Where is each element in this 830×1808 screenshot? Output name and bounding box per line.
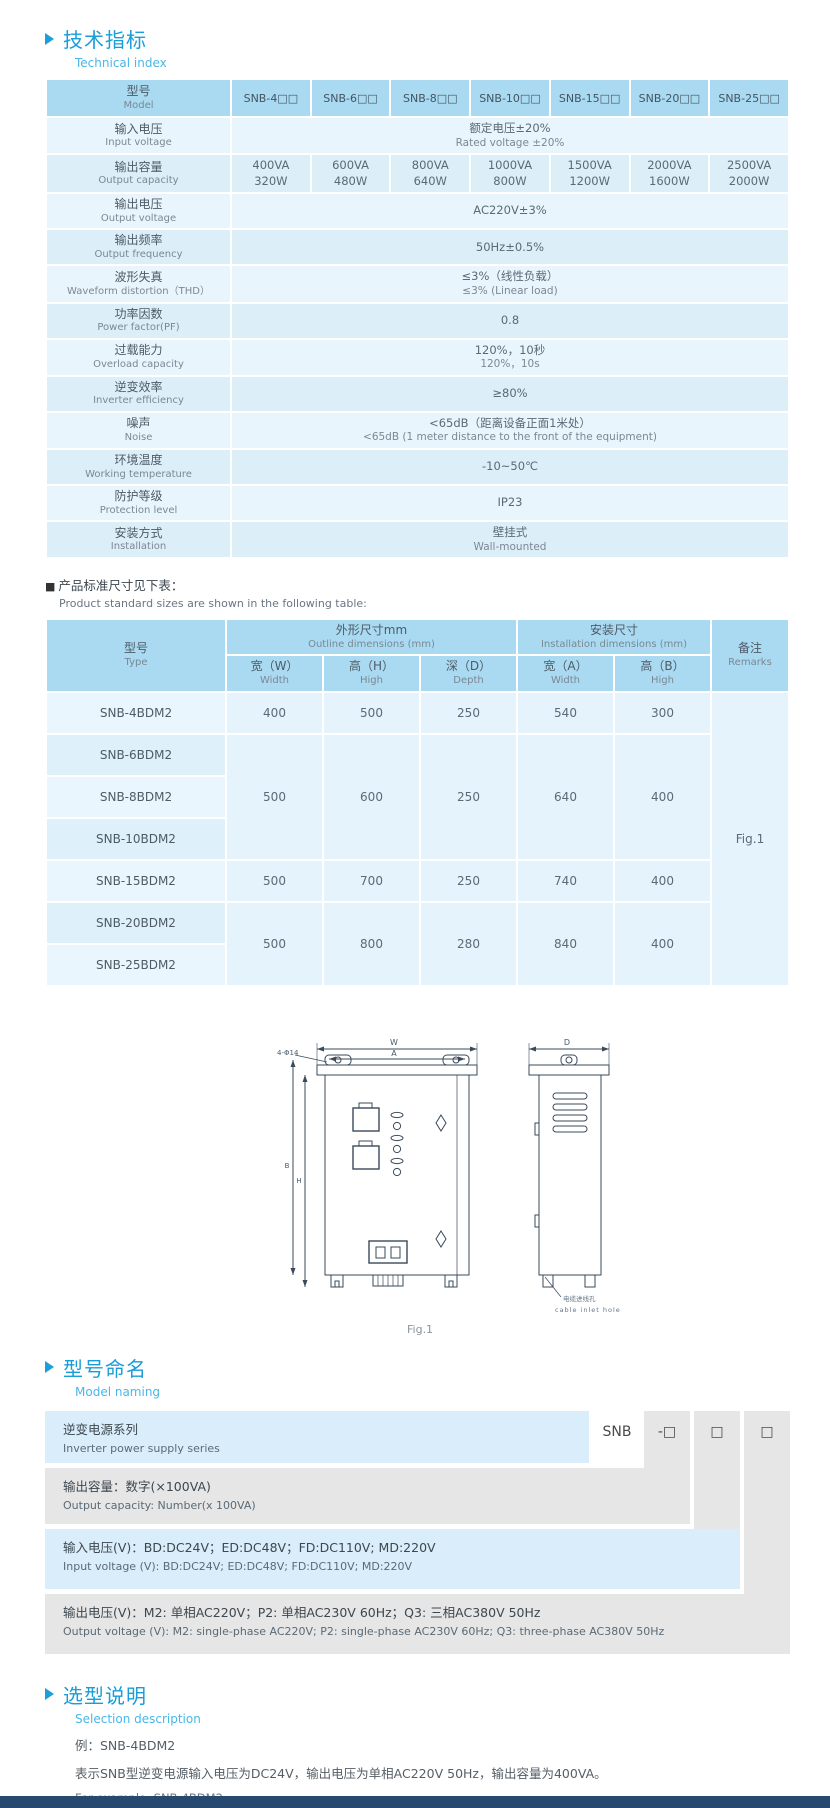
row-value: IP23	[231, 485, 789, 521]
dim-cell: 300	[614, 692, 711, 734]
size-header-install: 安装尺寸Installation dimensions (mm)	[517, 619, 711, 655]
spec-row-output-capacity: 输出容量 Output capacity 400VA320W 600VA480W…	[46, 154, 789, 193]
spec-row: 输出电压Output voltage AC220V±3%	[46, 193, 789, 229]
row-value: <65dB（距离设备正面1米处）<65dB (1 meter distance …	[231, 412, 789, 449]
section-title-en: Model naming	[75, 1385, 790, 1399]
naming-row-output: 输出电压(V)：M2: 单相AC220V；P2: 单相AC230V 60Hz；Q…	[45, 1594, 790, 1654]
model-cell: SNB-20BDM2	[46, 902, 226, 944]
row-label: 逆变效率Inverter efficiency	[46, 376, 231, 412]
model-col: SNB-10□□	[470, 79, 550, 117]
figure-caption: Fig.1	[407, 1323, 433, 1336]
model-col: SNB-25□□	[709, 79, 789, 117]
size-note-zh: 产品标准尺寸见下表：	[58, 578, 183, 593]
size-table: 型号Type 外形尺寸mmOutline dimensions (mm) 安装尺…	[45, 618, 790, 986]
dim-cell: 500	[226, 860, 323, 902]
model-cell: SNB-25BDM2	[46, 944, 226, 986]
size-header-type: 型号Type	[46, 619, 226, 691]
dim-d-label: D	[564, 1038, 570, 1047]
size-header-outline: 外形尺寸mmOutline dimensions (mm)	[226, 619, 517, 655]
dim-w-label: W	[390, 1038, 398, 1047]
dim-cell: 250	[420, 734, 517, 860]
model-col: SNB-6□□	[311, 79, 391, 117]
row-value: -10~50℃	[231, 449, 789, 485]
dim-b-label: B	[285, 1162, 290, 1170]
row-value: ≤3%（线性负载）≤3% (Linear load)	[231, 265, 789, 302]
size-subheader: 高（H）High	[323, 655, 420, 691]
row-value: ≥80%	[231, 376, 789, 412]
row-label: 输出容量 Output capacity	[46, 154, 231, 193]
model-col: SNB-8□□	[390, 79, 470, 117]
dim-cell: 700	[323, 860, 420, 902]
section-title-zh: 型号命名	[63, 1353, 147, 1382]
spec-row-input-voltage: 输入电压 Input voltage 额定电压±20% Rated voltag…	[46, 117, 789, 154]
code-prefix: SNB	[593, 1424, 641, 1440]
dim-cell: 400	[614, 734, 711, 860]
model-col: SNB-15□□	[550, 79, 630, 117]
cabinet-drawing-svg: W A D 4-Φ14 H B 电缆进线孔 cable inlet hole F…	[257, 1013, 657, 1343]
size-subheader: 宽（A）Width	[517, 655, 614, 691]
dim-cell: 500	[226, 902, 323, 986]
row-label: 防护等级Protection level	[46, 485, 231, 521]
size-note: ■产品标准尺寸见下表： Product standard sizes are s…	[45, 575, 790, 610]
naming-row-capacity: 输出容量：数字(×100VA)Output capacity: Number(x…	[45, 1468, 690, 1524]
size-row: SNB-20BDM2 500 800 280 840 400	[46, 902, 789, 944]
section-naming-header: 型号命名 Model naming	[45, 1353, 790, 1399]
spec-row: 环境温度Working temperature -10~50℃	[46, 449, 789, 485]
page-footer-bar	[0, 1796, 830, 1808]
section-arrow-icon	[45, 1688, 54, 1700]
spec-row: 波形失真Waveform distortion（THD） ≤3%（线性负载）≤3…	[46, 265, 789, 302]
model-cell: SNB-10BDM2	[46, 818, 226, 860]
code-slot-3: □	[744, 1411, 790, 1594]
size-note-en: Product standard sizes are shown in the …	[59, 597, 790, 610]
section-arrow-icon	[45, 33, 54, 45]
model-naming-ladder: -□ □ □ SNB 逆变电源系列Inverter power supply s…	[45, 1411, 790, 1654]
model-cell: SNB-6BDM2	[46, 734, 226, 776]
cable-inlet-label-zh: 电缆进线孔	[563, 1294, 596, 1303]
dim-a-label: A	[391, 1049, 397, 1058]
size-subheader: 宽（W）Width	[226, 655, 323, 691]
dim-cell: 400	[614, 860, 711, 902]
size-header-remarks: 备注Remarks	[711, 619, 789, 691]
section-arrow-icon	[45, 1361, 54, 1373]
dim-cell: 640	[517, 734, 614, 860]
dim-cell: 600	[323, 734, 420, 860]
row-value: 120%，10秒120%，10s	[231, 339, 789, 376]
section-selection-header: 选型说明 Selection description	[45, 1680, 790, 1726]
naming-row-input: 输入电压(V)：BD:DC24V；ED:DC48V；FD:DC110V; MD:…	[45, 1529, 740, 1589]
row-value: AC220V±3%	[231, 193, 789, 229]
capacity-cell: 600VA480W	[311, 154, 391, 193]
dim-cell: 740	[517, 860, 614, 902]
spec-header-row: 型号 Model SNB-4□□ SNB-6□□ SNB-8□□ SNB-10□…	[46, 79, 789, 117]
dim-cell: 250	[420, 692, 517, 734]
row-label: 噪声Noise	[46, 412, 231, 449]
naming-row-series: 逆变电源系列Inverter power supply series	[45, 1411, 589, 1463]
model-cell: SNB-4BDM2	[46, 692, 226, 734]
size-row: SNB-4BDM2 400 500 250 540 300 Fig.1	[46, 692, 789, 734]
mounting-holes-label: 4-Φ14	[277, 1049, 299, 1057]
capacity-cell: 1000VA800W	[470, 154, 550, 193]
capacity-cell: 800VA640W	[390, 154, 470, 193]
model-col: SNB-20□□	[630, 79, 710, 117]
cable-inlet-label-en: cable inlet hole	[555, 1306, 621, 1314]
code-slot-1: -□	[644, 1411, 690, 1468]
capacity-cell: 2500VA2000W	[709, 154, 789, 193]
row-value: 壁挂式Wall-mounted	[231, 521, 789, 558]
size-subheader: 高（B）High	[614, 655, 711, 691]
dim-cell: 500	[226, 734, 323, 860]
dim-cell: 400	[226, 692, 323, 734]
square-bullet-icon: ■	[45, 580, 55, 593]
model-label-zh: 型号	[49, 84, 228, 100]
dim-cell: 500	[323, 692, 420, 734]
size-subheader: 深（D）Depth	[420, 655, 517, 691]
dim-cell: 840	[517, 902, 614, 986]
section-title-zh: 技术指标	[63, 24, 147, 53]
selection-example-zh: 例：SNB-4BDM2	[75, 1735, 790, 1754]
spec-row: 噪声Noise <65dB（距离设备正面1米处）<65dB (1 meter d…	[46, 412, 789, 449]
spec-row: 防护等级Protection level IP23	[46, 485, 789, 521]
model-cell: SNB-8BDM2	[46, 776, 226, 818]
outline-drawing: W A D 4-Φ14 H B 电缆进线孔 cable inlet hole F…	[257, 1013, 790, 1343]
code-slot-2: □	[694, 1411, 740, 1529]
row-label: 安装方式Installation	[46, 521, 231, 558]
remark-cell: Fig.1	[711, 692, 789, 986]
spec-row: 安装方式Installation 壁挂式Wall-mounted	[46, 521, 789, 558]
row-label: 过载能力Overload capacity	[46, 339, 231, 376]
model-cell: SNB-15BDM2	[46, 860, 226, 902]
row-label: 功率因数Power factor(PF)	[46, 303, 231, 339]
spec-table: 型号 Model SNB-4□□ SNB-6□□ SNB-8□□ SNB-10□…	[45, 78, 790, 559]
capacity-cell: 1500VA1200W	[550, 154, 630, 193]
model-label-en: Model	[49, 100, 228, 113]
spec-row: 过载能力Overload capacity 120%，10秒120%，10s	[46, 339, 789, 376]
row-label: 环境温度Working temperature	[46, 449, 231, 485]
dim-cell: 400	[614, 902, 711, 986]
spec-row: 输出频率Output frequency 50Hz±0.5%	[46, 229, 789, 265]
section-title-zh: 选型说明	[63, 1680, 147, 1709]
spec-row: 功率因数Power factor(PF) 0.8	[46, 303, 789, 339]
row-label: 输入电压 Input voltage	[46, 117, 231, 154]
dim-cell: 800	[323, 902, 420, 986]
spec-row: 逆变效率Inverter efficiency ≥80%	[46, 376, 789, 412]
selection-meaning-zh: 表示SNB型逆变电源输入电压为DC24V，输出电压为单相AC220V 50Hz，…	[75, 1763, 790, 1782]
row-value: 50Hz±0.5%	[231, 229, 789, 265]
dim-cell: 250	[420, 860, 517, 902]
row-value: 额定电压±20% Rated voltage ±20%	[231, 117, 789, 154]
row-label: 波形失真Waveform distortion（THD）	[46, 265, 231, 302]
row-label: 输出频率Output frequency	[46, 229, 231, 265]
spec-header-model: 型号 Model	[46, 79, 231, 117]
section-title-en: Selection description	[75, 1712, 790, 1726]
capacity-cell: 400VA320W	[231, 154, 311, 193]
dim-cell: 280	[420, 902, 517, 986]
size-row: SNB-15BDM2 500 700 250 740 400	[46, 860, 789, 902]
size-row: SNB-6BDM2 500 600 250 640 400	[46, 734, 789, 776]
row-label: 输出电压Output voltage	[46, 193, 231, 229]
section-title-en: Technical index	[75, 56, 790, 70]
model-col: SNB-4□□	[231, 79, 311, 117]
datasheet-page: 技术指标 Technical index 型号 Model SNB-4□□ SN…	[0, 0, 830, 1808]
row-value: 0.8	[231, 303, 789, 339]
section-technical-header: 技术指标 Technical index	[45, 24, 790, 70]
capacity-cell: 2000VA1600W	[630, 154, 710, 193]
dim-h-label: H	[296, 1177, 301, 1185]
dim-cell: 540	[517, 692, 614, 734]
